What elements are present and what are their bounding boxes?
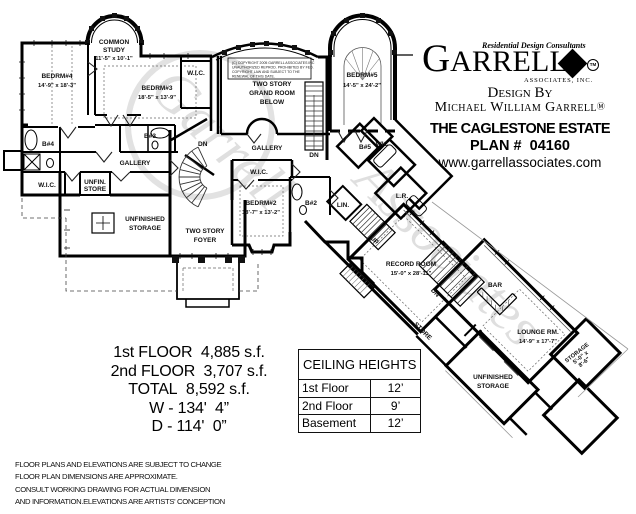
svg-text:18'-5" x 13'-9": 18'-5" x 13'-9" [138, 95, 176, 101]
svg-text:FOYER: FOYER [194, 237, 217, 244]
svg-text:B#4: B#4 [42, 141, 54, 148]
svg-text:DN: DN [198, 141, 208, 148]
svg-text:BAR: BAR [488, 282, 502, 289]
svg-text:W.I.C.: W.I.C. [250, 169, 268, 176]
svg-text:B#3: B#3 [144, 133, 156, 140]
svg-text:15'-0" x 28'-11": 15'-0" x 28'-11" [391, 271, 432, 277]
svg-text:GALLERY: GALLERY [120, 160, 151, 167]
svg-text:LOUNGE RM.: LOUNGE RM. [517, 329, 559, 336]
svg-text:STORAGE: STORAGE [129, 225, 162, 232]
svg-text:W.I.C.: W.I.C. [187, 70, 205, 77]
svg-text:W.I.C.: W.I.C. [38, 182, 56, 189]
svg-text:TWO STORY: TWO STORY [186, 228, 226, 235]
svg-text:L.R.: L.R. [396, 193, 408, 200]
svg-text:BEDRM#4: BEDRM#4 [41, 73, 72, 80]
svg-text:COPYRIGHT LAW AND SUBJECT TO T: COPYRIGHT LAW AND SUBJECT TO THE [232, 70, 300, 74]
svg-text:UNFINISHED: UNFINISHED [473, 374, 513, 381]
svg-text:RECORD ROOM: RECORD ROOM [386, 261, 436, 268]
svg-text:13'-7" x 13'-2": 13'-7" x 13'-2" [242, 210, 280, 216]
svg-text:BELOW: BELOW [260, 99, 285, 106]
svg-text:(C) COPYRIGHT 2005 GARRELL ASS: (C) COPYRIGHT 2005 GARRELL ASSOCIATES IN… [232, 61, 315, 65]
svg-text:BEDRM#3: BEDRM#3 [141, 85, 172, 92]
svg-text:COMMON: COMMON [99, 39, 130, 46]
svg-text:14'-9" x 18'-3": 14'-9" x 18'-3" [38, 83, 76, 89]
svg-text:B#2: B#2 [305, 200, 317, 207]
svg-text:STORAGE: STORAGE [477, 383, 510, 390]
svg-text:BEDRM#2: BEDRM#2 [245, 200, 276, 207]
svg-text:LIN.: LIN. [337, 202, 349, 209]
svg-text:DN: DN [429, 287, 441, 299]
svg-text:WIC: WIC [376, 141, 389, 148]
svg-text:GALLERY: GALLERY [252, 145, 283, 152]
svg-text:UNFIN.: UNFIN. [84, 179, 106, 186]
svg-text:RENEWAL OF THIS DATE.: RENEWAL OF THIS DATE. [232, 75, 275, 79]
svg-text:11'-5" x 10'-1": 11'-5" x 10'-1" [95, 56, 133, 62]
svg-text:UNFINISHED: UNFINISHED [125, 216, 165, 223]
svg-text:STORE: STORE [84, 186, 107, 193]
svg-text:BEDRM#5: BEDRM#5 [346, 72, 377, 79]
svg-text:14'-9" x 17'-7": 14'-9" x 17'-7" [519, 339, 557, 345]
svg-text:DN: DN [309, 152, 319, 159]
svg-text:14'-5" x 24'-2": 14'-5" x 24'-2" [343, 83, 381, 89]
svg-text:STUDY: STUDY [103, 47, 126, 54]
svg-text:UNAUTHORIZED REPROD. PROHIBITE: UNAUTHORIZED REPROD. PROHIBITED BY FED. [232, 66, 314, 70]
svg-text:B#5: B#5 [359, 144, 371, 151]
svg-text:TWO STORY: TWO STORY [253, 81, 293, 88]
svg-text:GRAND ROOM: GRAND ROOM [249, 90, 295, 97]
